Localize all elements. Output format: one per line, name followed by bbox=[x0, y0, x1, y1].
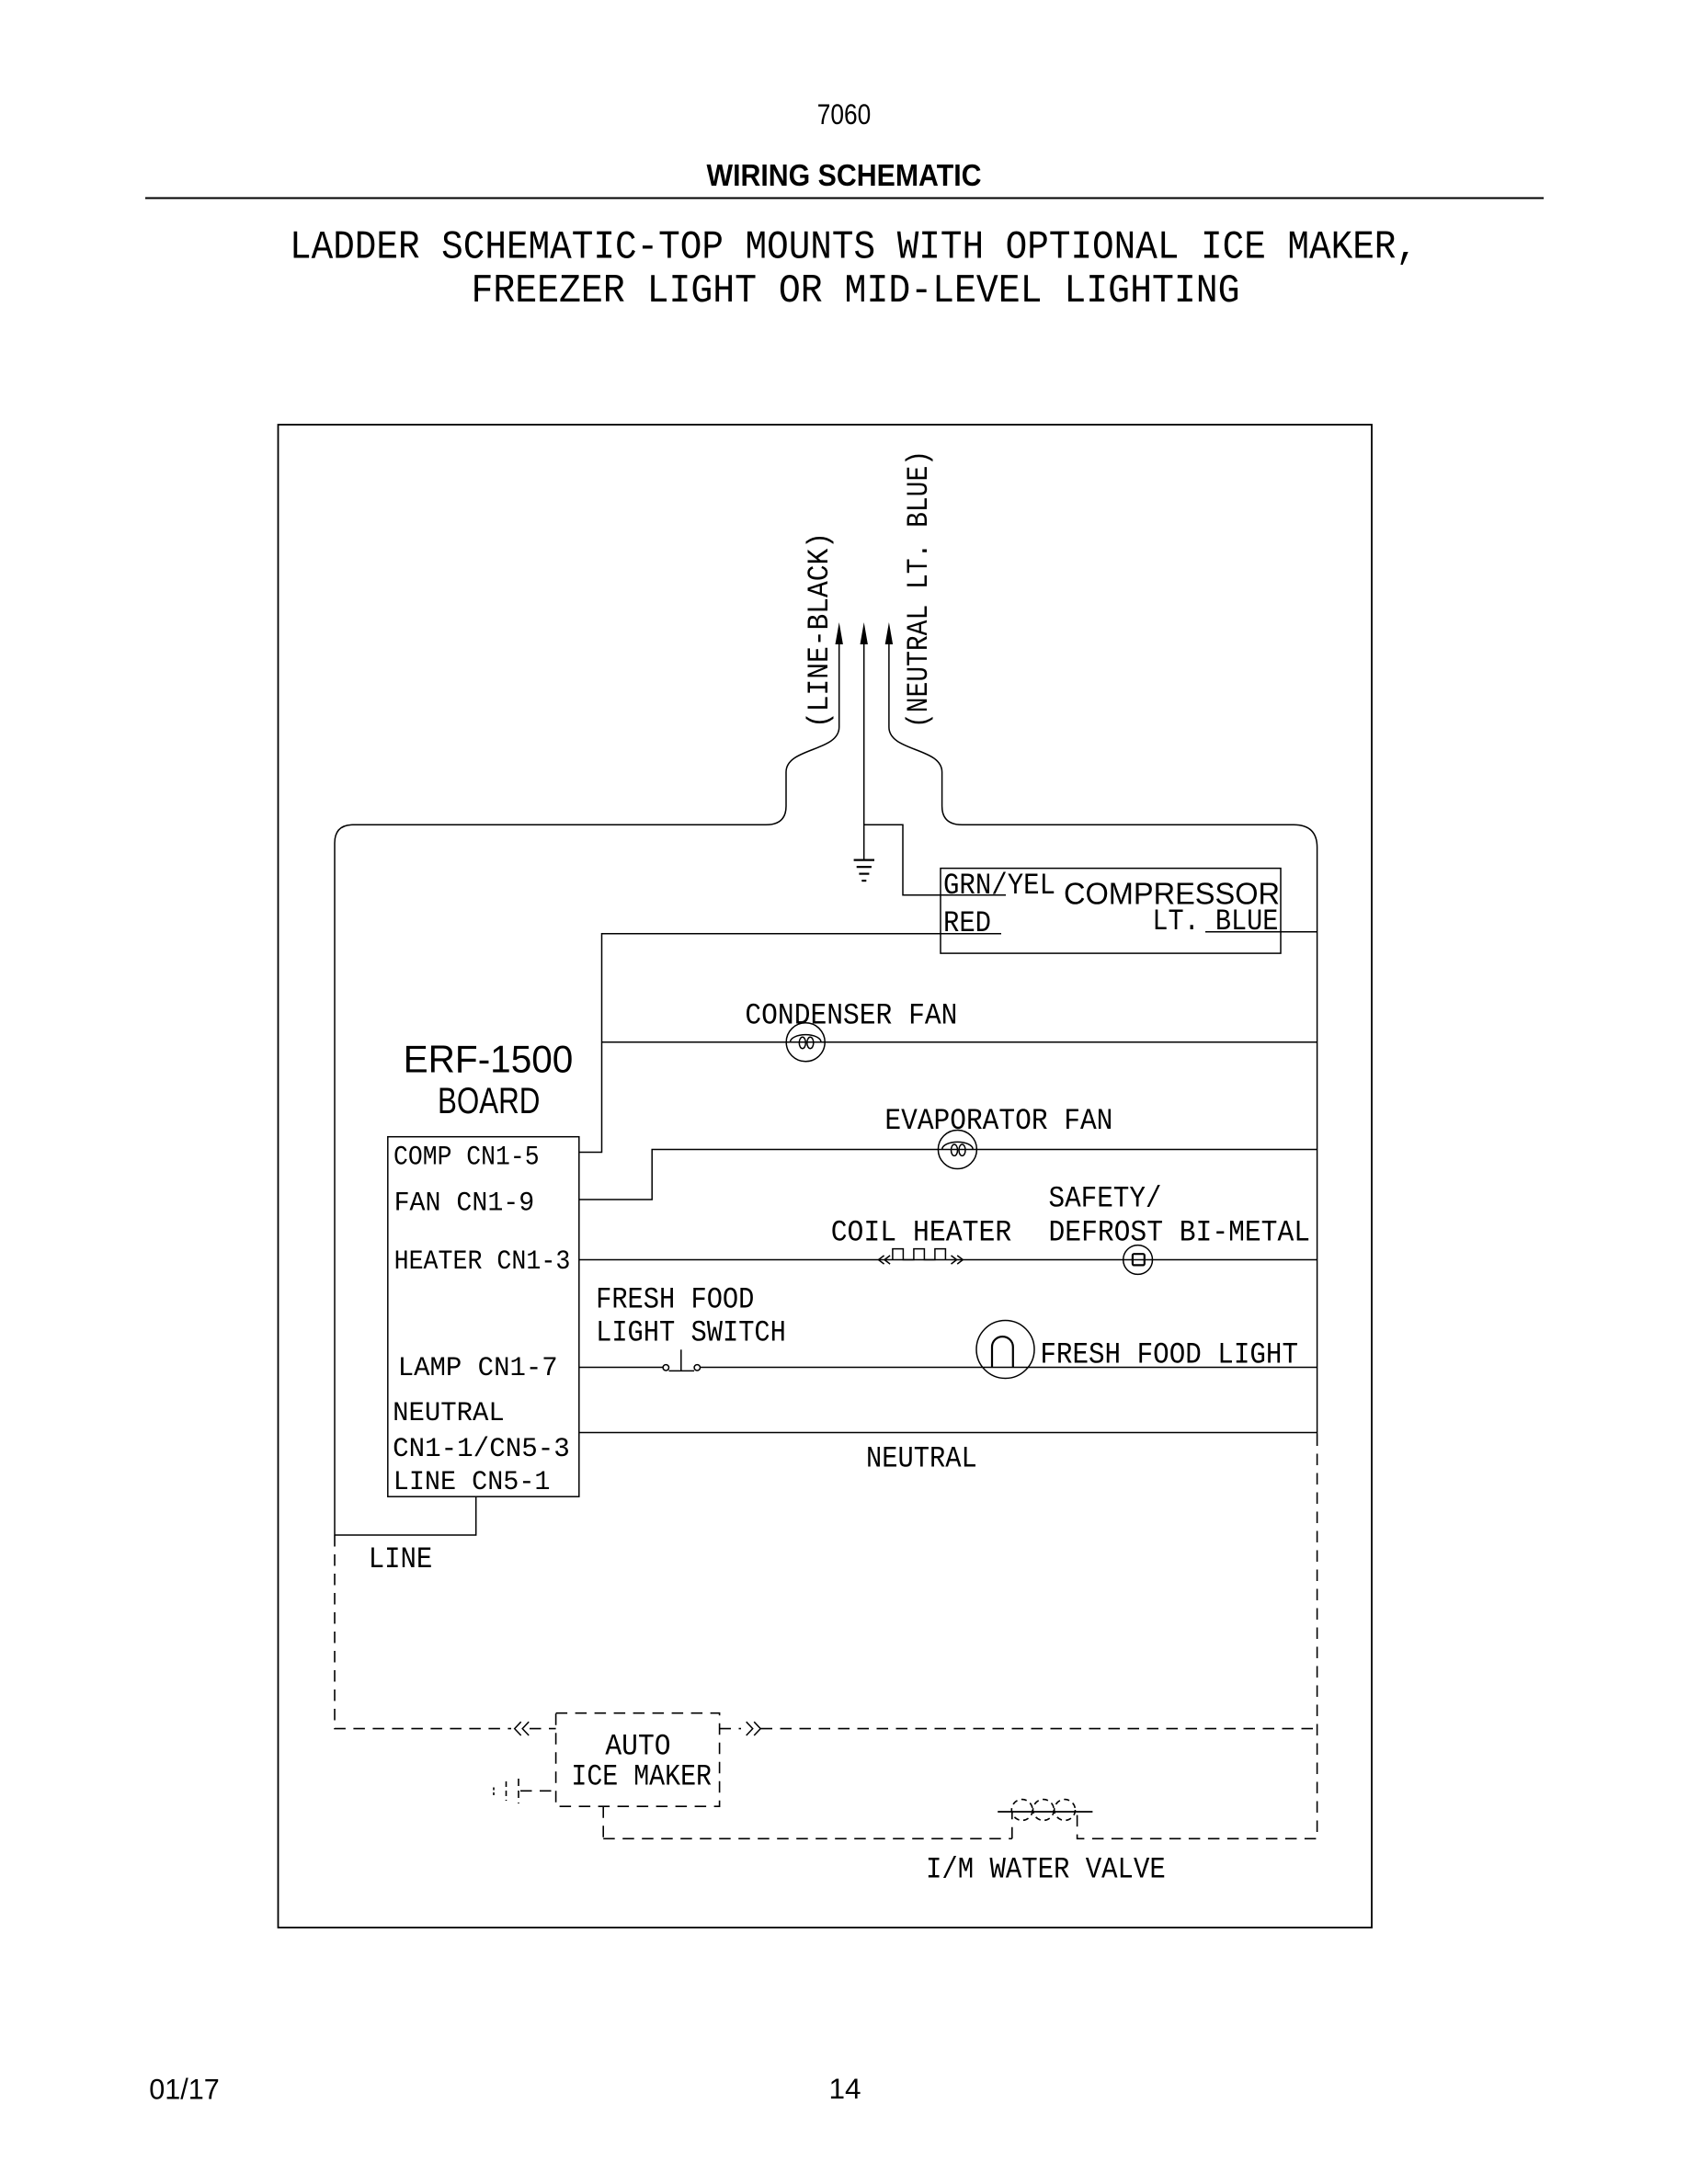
svg-text:(LINE-BLACK): (LINE-BLACK) bbox=[803, 532, 837, 728]
svg-text:BOARD: BOARD bbox=[438, 1081, 541, 1121]
svg-text:GRN/YEL: GRN/YEL bbox=[943, 869, 1055, 903]
svg-text:7060: 7060 bbox=[817, 97, 872, 131]
svg-text:DEFROST BI-METAL: DEFROST BI-METAL bbox=[1049, 1216, 1311, 1250]
svg-text:01/17: 01/17 bbox=[149, 2073, 220, 2106]
svg-text:FRESH FOOD LIGHT: FRESH FOOD LIGHT bbox=[1040, 1338, 1298, 1372]
svg-text:FREEZER LIGHT OR MID-LEVEL LIG: FREEZER LIGHT OR MID-LEVEL LIGHTING bbox=[472, 268, 1240, 314]
svg-text:LIGHT SWITCH: LIGHT SWITCH bbox=[596, 1316, 786, 1350]
svg-text:LT. BLUE: LT. BLUE bbox=[1152, 904, 1278, 938]
svg-text:COIL HEATER: COIL HEATER bbox=[831, 1216, 1011, 1250]
svg-text:EVAPORATOR FAN: EVAPORATOR FAN bbox=[884, 1104, 1112, 1138]
svg-text:HEATER CN1-3: HEATER CN1-3 bbox=[394, 1246, 571, 1277]
svg-text:LINE CN5-1: LINE CN5-1 bbox=[393, 1467, 551, 1497]
svg-text:FRESH FOOD: FRESH FOOD bbox=[596, 1283, 754, 1317]
svg-text:(NEUTRAL LT. BLUE): (NEUTRAL LT. BLUE) bbox=[902, 450, 936, 728]
svg-text:CN1-1/CN5-3: CN1-1/CN5-3 bbox=[393, 1434, 570, 1464]
svg-text:14: 14 bbox=[828, 2072, 861, 2105]
svg-text:COMP CN1-5: COMP CN1-5 bbox=[393, 1142, 540, 1172]
svg-text:FAN CN1-9: FAN CN1-9 bbox=[394, 1188, 535, 1218]
svg-text:LADDER SCHEMATIC-TOP MOUNTS WI: LADDER SCHEMATIC-TOP MOUNTS WITH OPTIONA… bbox=[290, 225, 1418, 271]
svg-text:LINE: LINE bbox=[369, 1542, 433, 1576]
svg-text:AUTO: AUTO bbox=[605, 1730, 670, 1764]
svg-text:WIRING SCHEMATIC: WIRING SCHEMATIC bbox=[707, 159, 982, 193]
svg-text:LAMP CN1-7: LAMP CN1-7 bbox=[398, 1353, 558, 1383]
svg-text:NEUTRAL: NEUTRAL bbox=[866, 1441, 977, 1475]
svg-text:CONDENSER FAN: CONDENSER FAN bbox=[745, 999, 957, 1033]
svg-text:ICE MAKER: ICE MAKER bbox=[571, 1760, 712, 1794]
svg-text:ERF-1500: ERF-1500 bbox=[404, 1038, 574, 1081]
svg-text:I/M WATER VALVE: I/M WATER VALVE bbox=[926, 1852, 1166, 1886]
svg-text:SAFETY/: SAFETY/ bbox=[1049, 1182, 1162, 1216]
svg-text:NEUTRAL: NEUTRAL bbox=[393, 1398, 505, 1428]
svg-text:RED: RED bbox=[943, 906, 991, 940]
